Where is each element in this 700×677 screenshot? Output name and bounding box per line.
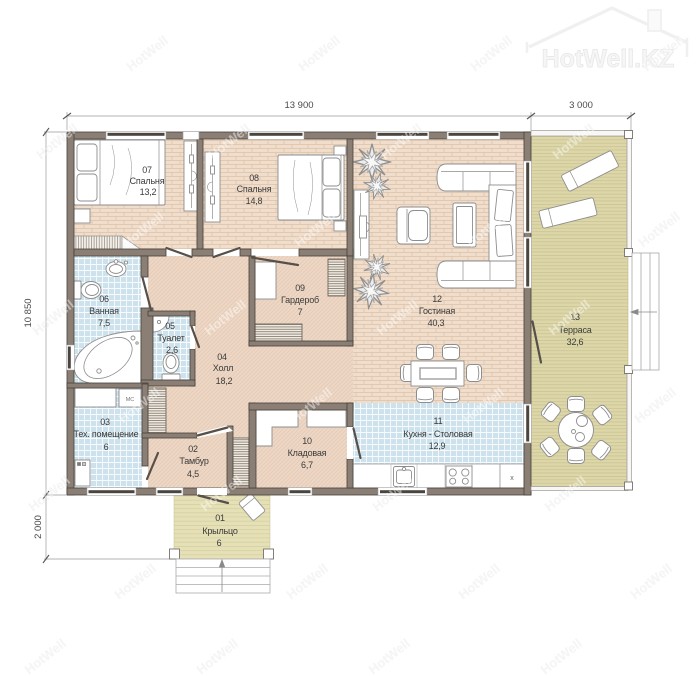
svg-text:Холл: Холл: [213, 363, 233, 373]
svg-text:09: 09: [295, 283, 305, 293]
svg-text:03: 03: [100, 417, 110, 427]
svg-text:4,5: 4,5: [187, 469, 199, 479]
svg-text:12,9: 12,9: [429, 441, 446, 451]
svg-text:7,5: 7,5: [98, 318, 110, 328]
svg-text:Туалет: Туалет: [157, 333, 184, 343]
svg-text:Кухня - Столовая: Кухня - Столовая: [403, 429, 472, 439]
svg-text:06: 06: [99, 294, 109, 304]
svg-text:02: 02: [188, 444, 198, 454]
svg-text:40,3: 40,3: [428, 318, 445, 328]
svg-text:01: 01: [215, 513, 225, 523]
svg-text:11: 11: [434, 416, 443, 426]
svg-text:2,6: 2,6: [166, 345, 178, 355]
svg-text:x: x: [510, 475, 514, 482]
svg-text:04: 04: [217, 352, 227, 362]
svg-text:05: 05: [165, 321, 175, 331]
svg-text:18,2: 18,2: [216, 376, 233, 386]
svg-text:10: 10: [302, 436, 312, 446]
svg-text:32,6: 32,6: [567, 337, 584, 347]
svg-text:07: 07: [142, 165, 152, 175]
svg-text:Гостиная: Гостиная: [419, 306, 456, 316]
svg-text:13,2: 13,2: [140, 187, 157, 197]
svg-text:3 000: 3 000: [569, 100, 593, 111]
svg-text:Крыльцо: Крыльцо: [202, 526, 238, 536]
svg-text:7: 7: [298, 307, 303, 317]
svg-text:Тамбур: Тамбур: [179, 456, 209, 466]
svg-text:2 000: 2 000: [33, 515, 44, 539]
svg-text:08: 08: [249, 173, 259, 183]
svg-text:Кладовая: Кладовая: [288, 448, 327, 458]
svg-text:Тех. помещение: Тех. помещение: [74, 429, 139, 439]
svg-text:6,7: 6,7: [301, 460, 313, 470]
svg-text:Спальня: Спальня: [237, 184, 272, 194]
svg-text:6: 6: [217, 538, 222, 548]
svg-text:6: 6: [104, 442, 109, 452]
svg-text:Ванная: Ванная: [89, 306, 119, 316]
svg-text:14,8: 14,8: [246, 196, 263, 206]
svg-text:Гардероб: Гардероб: [281, 295, 319, 305]
svg-text:13 900: 13 900: [284, 100, 313, 111]
svg-text:Спальня: Спальня: [130, 176, 165, 186]
svg-text:12: 12: [432, 294, 442, 304]
